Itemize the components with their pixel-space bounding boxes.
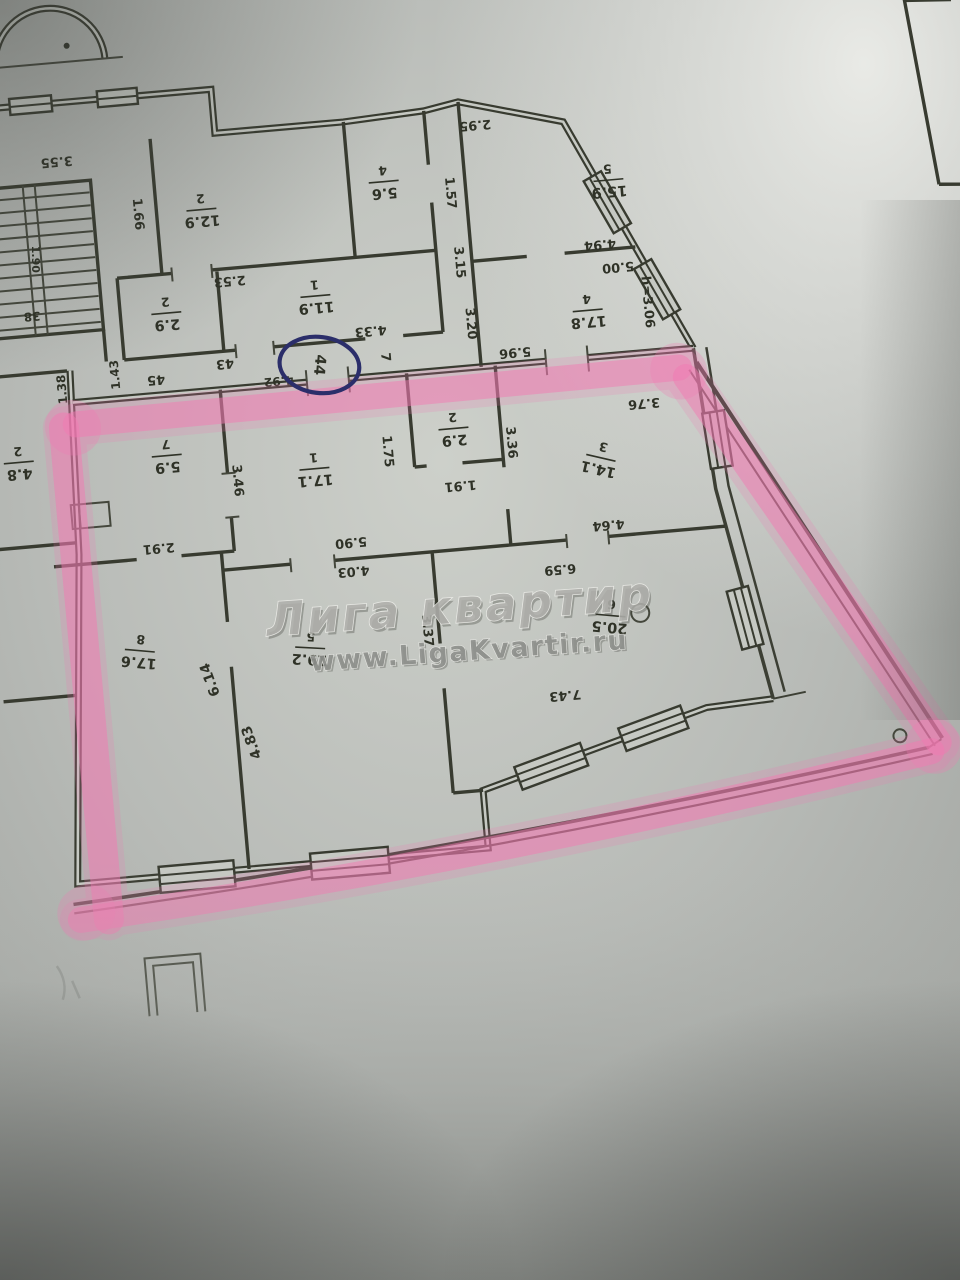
dim-3-76: 3.76 [627,394,660,412]
unit-44-circled: 44 [310,354,330,376]
floorplan-svg: 3.551.661.90382.534.331.573.153.202.954.… [0,0,960,1280]
unit-7: 7 [377,352,393,362]
room-2-9-upper-number: 2 [160,294,170,310]
dim-3-15: 3.15 [450,246,468,279]
dim-2-53: 2.53 [213,272,246,290]
room-2-9-number: 2 [448,410,458,426]
dim-4-94: 4.94 [583,235,616,253]
room-12-9-area: 12.9 [184,211,221,230]
dim-1-75: 1.75 [378,435,396,468]
dim-1-91: 1.91 [444,476,477,494]
room-5-6-number: 4 [377,163,387,179]
dim-1-43: 1.43 [107,359,124,390]
room-11-9-number: 1 [309,277,319,293]
dim-1-66: 1.66 [129,198,147,231]
dim-1-57: 1.57 [441,176,459,209]
room-15-9-number: 5 [602,161,612,177]
room-17-1-area: 17.1 [297,470,334,489]
dim-3-20: 3.20 [462,307,480,340]
dim-2-91: 2.91 [142,539,175,557]
dim-3-36: 3.36 [502,426,520,459]
room-17-8-area: 17.8 [570,312,607,331]
window-symbol [9,95,52,115]
dim-7-43: 7.43 [548,686,581,704]
unit-43: 43 [215,355,234,372]
dim-4-03: 4.03 [337,562,370,580]
dim-3-46: 3.46 [228,464,246,497]
room-12-9-number: 2 [195,191,205,207]
room-5-6-area: 5.6 [371,184,398,202]
dim-3-55: 3.55 [40,152,73,170]
room-15-9-area: 15.9 [591,181,628,200]
room-5-9-area: 5.9 [154,457,181,475]
room-4-8-area: 4.8 [6,464,33,482]
room-17-6-number: 8 [136,632,146,648]
dim-2-95: 2.95 [458,116,491,134]
window-symbol [97,88,138,107]
room-11-9-area: 11.9 [298,297,335,316]
dim-4-64: 4.64 [592,515,625,533]
room-17-1-number: 1 [308,450,318,466]
dim-5-00: 5.00 [601,258,634,276]
dim-38: 38 [23,309,41,324]
room-17-6-area: 17.6 [120,652,157,671]
room-2-9-upper-area: 2.9 [154,315,181,333]
dim-5-90: 5.90 [334,533,367,551]
unit-45: 45 [146,371,165,388]
dim-1-90: 1.90 [29,246,42,273]
room-2-9-area: 2.9 [441,430,468,448]
room-4-8-number: 2 [13,444,23,460]
room-5-9-number: 7 [161,437,171,453]
room-17-8-number: 4 [581,292,591,308]
floorplan-photo: 3.551.661.90382.534.331.573.153.202.954.… [0,0,960,1280]
dim-4-33: 4.33 [354,321,387,339]
dim-5-96: 5.96 [498,343,531,361]
